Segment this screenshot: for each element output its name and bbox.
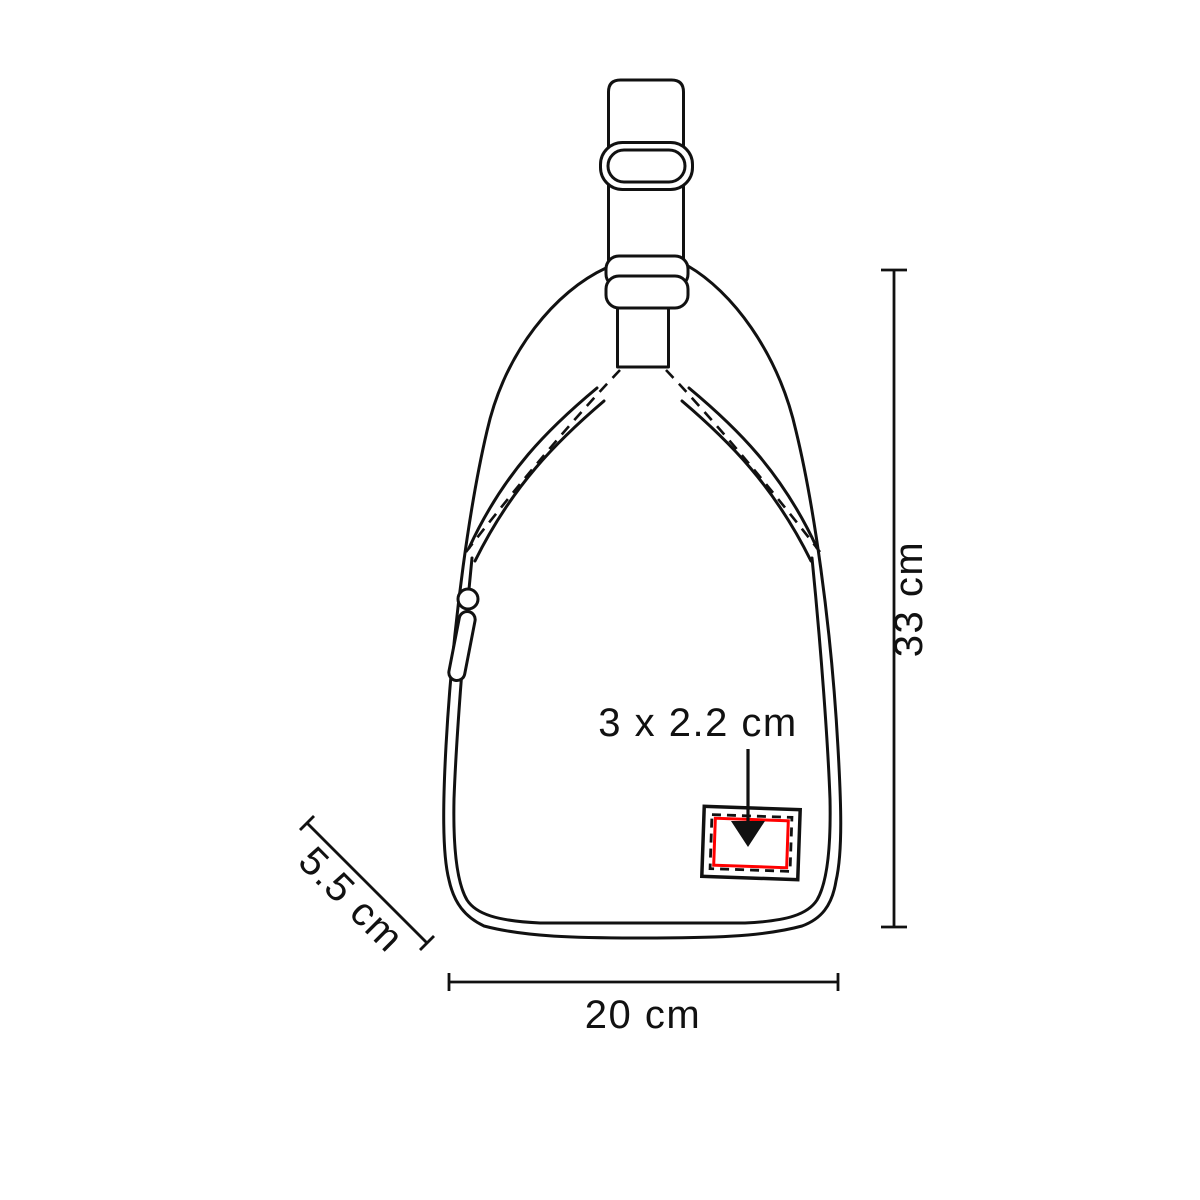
dimension-depth: 5.5 cm <box>290 816 434 961</box>
width-dim-label: 20 cm <box>585 993 701 1037</box>
loop-lower <box>606 276 688 308</box>
dimension-height: 33 cm <box>881 270 931 927</box>
imprint-area <box>702 806 800 879</box>
strap-slider-buckle <box>601 143 693 190</box>
dimension-width: 20 cm <box>449 973 838 1037</box>
depth-dim-label: 5.5 cm <box>290 839 412 961</box>
sling-bag-dimension-diagram: 3 x 2.2 cm 33 cm 20 cm 5.5 cm <box>0 0 1200 1200</box>
imprint-size-label: 3 x 2.2 cm <box>598 701 798 745</box>
diagram-canvas: 3 x 2.2 cm 33 cm 20 cm 5.5 cm <box>0 0 1200 1200</box>
zipper-ring <box>458 589 478 609</box>
strap-loop-connector <box>606 256 688 308</box>
height-dim-label: 33 cm <box>887 541 931 657</box>
shoulder-strap <box>601 80 693 260</box>
